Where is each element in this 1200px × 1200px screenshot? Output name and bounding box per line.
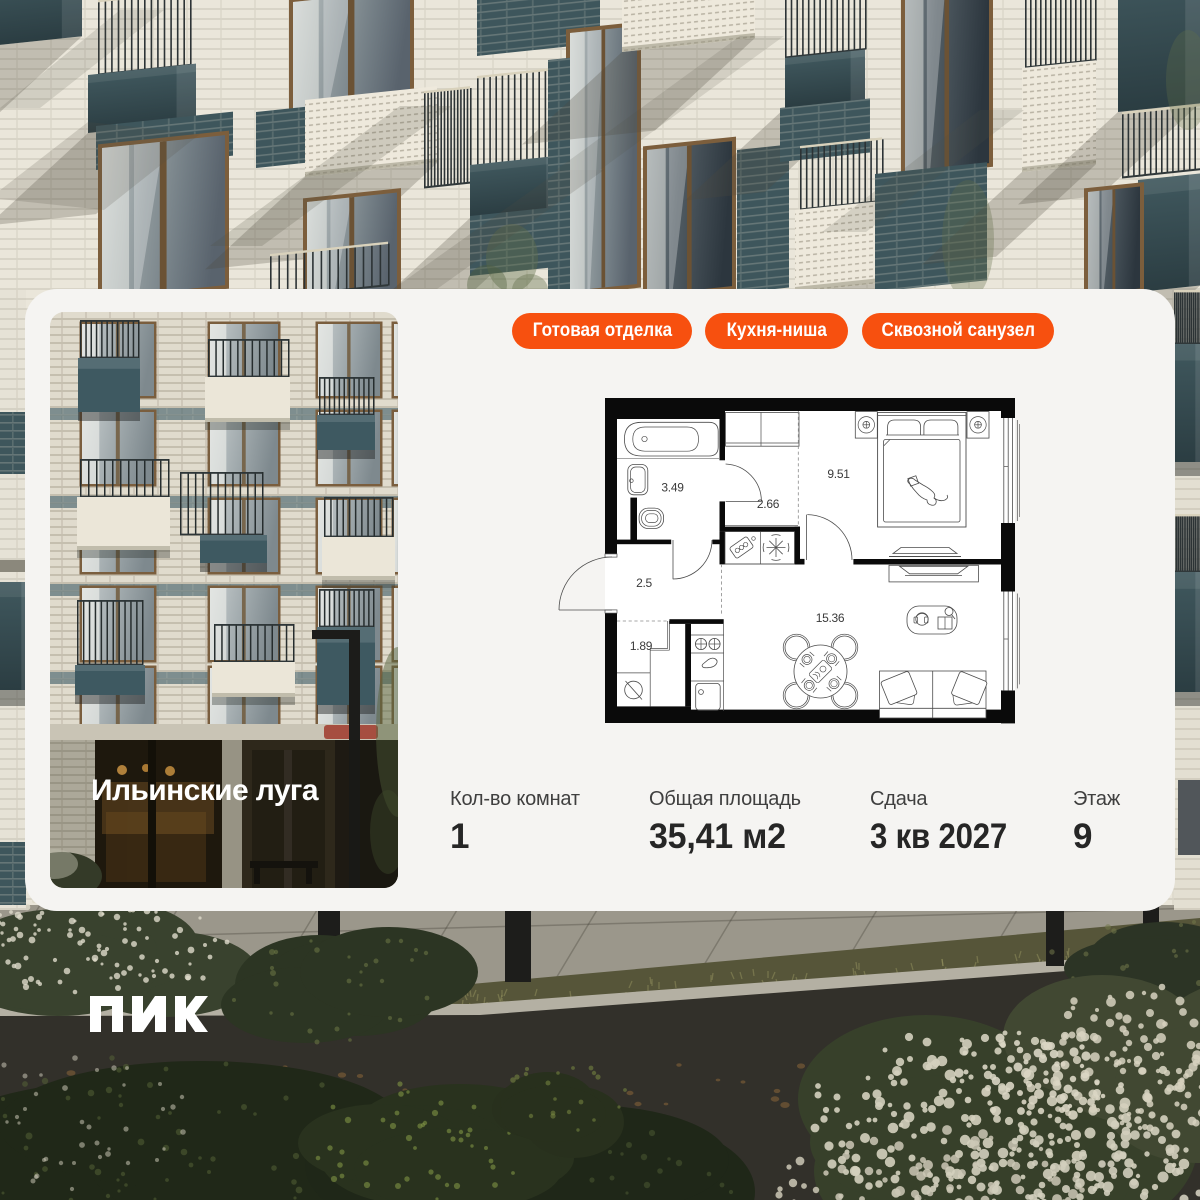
svg-text:2.66: 2.66	[757, 497, 780, 511]
svg-text:15.36: 15.36	[816, 611, 845, 625]
svg-text:3.49: 3.49	[661, 481, 684, 495]
svg-text:2.5: 2.5	[636, 576, 652, 590]
svg-text:9.51: 9.51	[827, 467, 850, 481]
svg-text:1.89: 1.89	[630, 639, 653, 653]
